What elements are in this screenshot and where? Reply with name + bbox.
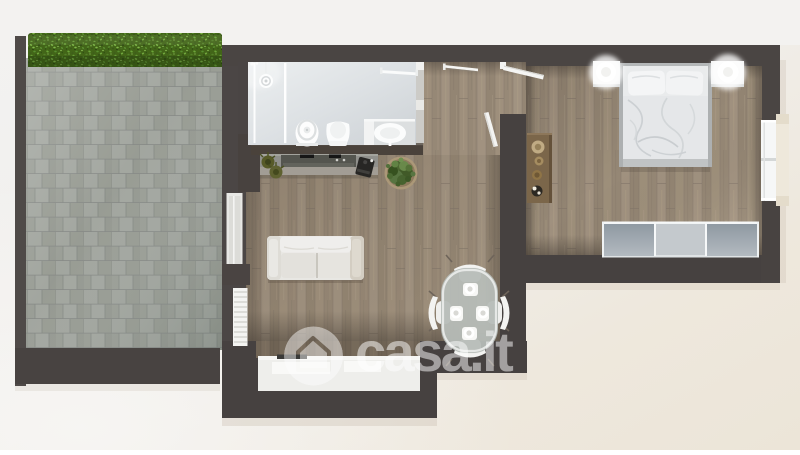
svg-text:casa.it: casa.it [355,320,513,383]
